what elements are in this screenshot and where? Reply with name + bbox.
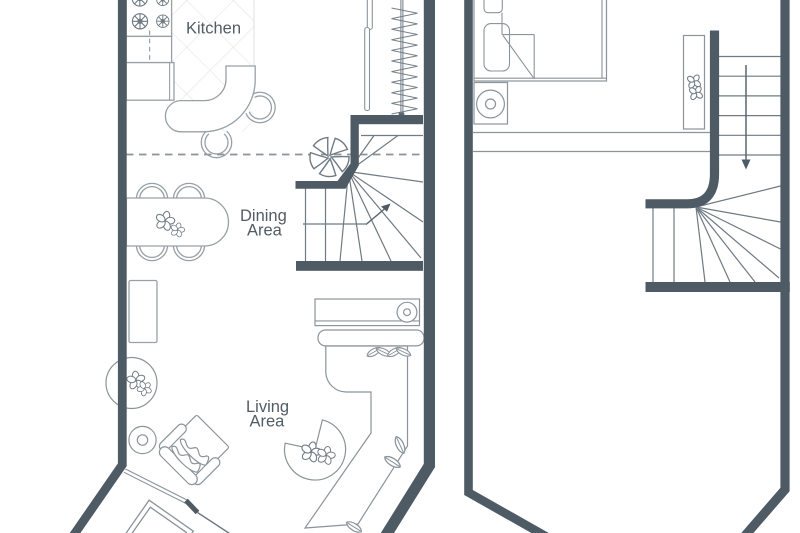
svg-text:Kitchen: Kitchen — [186, 20, 241, 38]
svg-text:Area: Area — [247, 222, 283, 240]
svg-text:Area: Area — [250, 413, 286, 431]
